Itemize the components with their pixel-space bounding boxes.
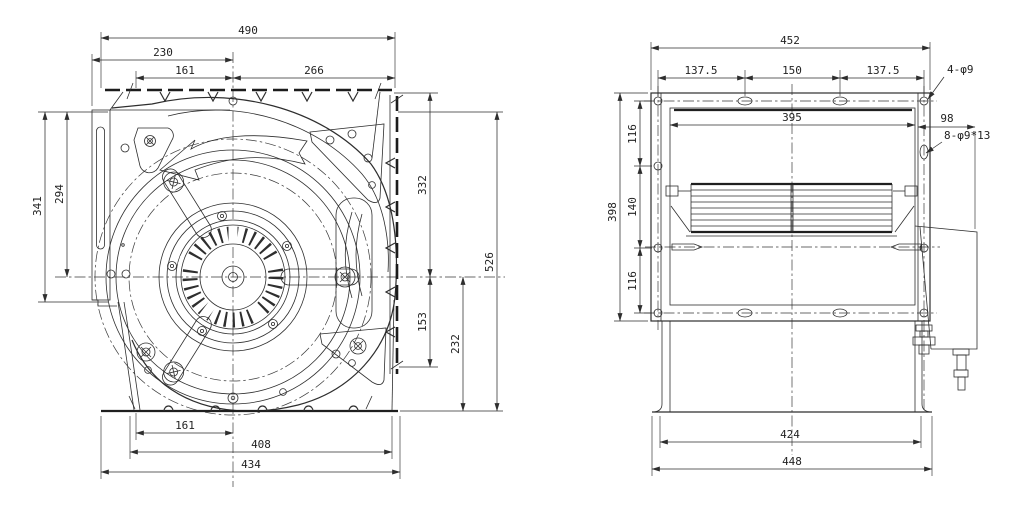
dim-front-hole-to-center: 161 (175, 64, 195, 77)
dim-front-top-overall: 490 (238, 24, 258, 37)
front-bottom-flange (101, 393, 398, 411)
dim-side-pitch-right: 137.5 (866, 64, 899, 77)
dim-front-left-to-center: 230 (153, 46, 173, 59)
dim-front-bottom-hole-to-center: 161 (175, 419, 195, 432)
dim-front-overall-height: 526 (483, 252, 496, 272)
label-corner-holes: 4-φ9 (947, 63, 974, 76)
rotation-arrow-icon (160, 136, 307, 180)
dim-side-bottom-overall: 448 (782, 455, 802, 468)
dim-side-motor-protrusion: 98 (940, 112, 953, 125)
dim-side-pitch-top: 116 (626, 124, 639, 144)
dim-side-overall-height: 398 (606, 202, 619, 222)
dim-side-pitch-bottom: 116 (626, 271, 639, 291)
front-brackets (107, 124, 386, 395)
side-motor-box (913, 226, 977, 410)
dim-front-center-to-cutoff: 153 (416, 312, 429, 332)
side-impeller-drum (666, 184, 917, 236)
dim-side-pitch-left: 137.5 (684, 64, 717, 77)
dim-side-feet-span: 424 (780, 428, 800, 441)
side-centerlines (645, 84, 940, 455)
dim-front-left-outer-height: 341 (31, 196, 44, 216)
dim-side-inner-width: 395 (782, 111, 802, 124)
dim-front-center-to-base: 232 (449, 334, 462, 354)
technical-drawing-canvas: 490 230 161 266 341 294 332 153 232 (0, 0, 1024, 517)
label-side-slots: 8-φ9*13 (944, 129, 990, 142)
dim-front-top-to-center: 294 (53, 184, 66, 204)
front-top-flange (105, 83, 392, 105)
front-view: 490 230 161 266 341 294 332 153 232 (31, 24, 505, 487)
dim-front-bottom-overall: 434 (241, 458, 261, 471)
side-dimensions: 452 137.5 150 137.5 4-φ9 395 98 8-φ9*13 … (606, 34, 990, 476)
dim-front-flange-to-center: 332 (416, 175, 429, 195)
dim-front-center-to-right: 266 (304, 64, 324, 77)
dim-side-top-overall: 452 (780, 34, 800, 47)
dim-front-bolt-span: 408 (251, 438, 271, 451)
dim-side-pitch-mid: 150 (782, 64, 802, 77)
side-view: 452 137.5 150 137.5 4-φ9 395 98 8-φ9*13 … (606, 34, 990, 476)
dim-side-pitch-mid-v: 140 (626, 197, 639, 217)
